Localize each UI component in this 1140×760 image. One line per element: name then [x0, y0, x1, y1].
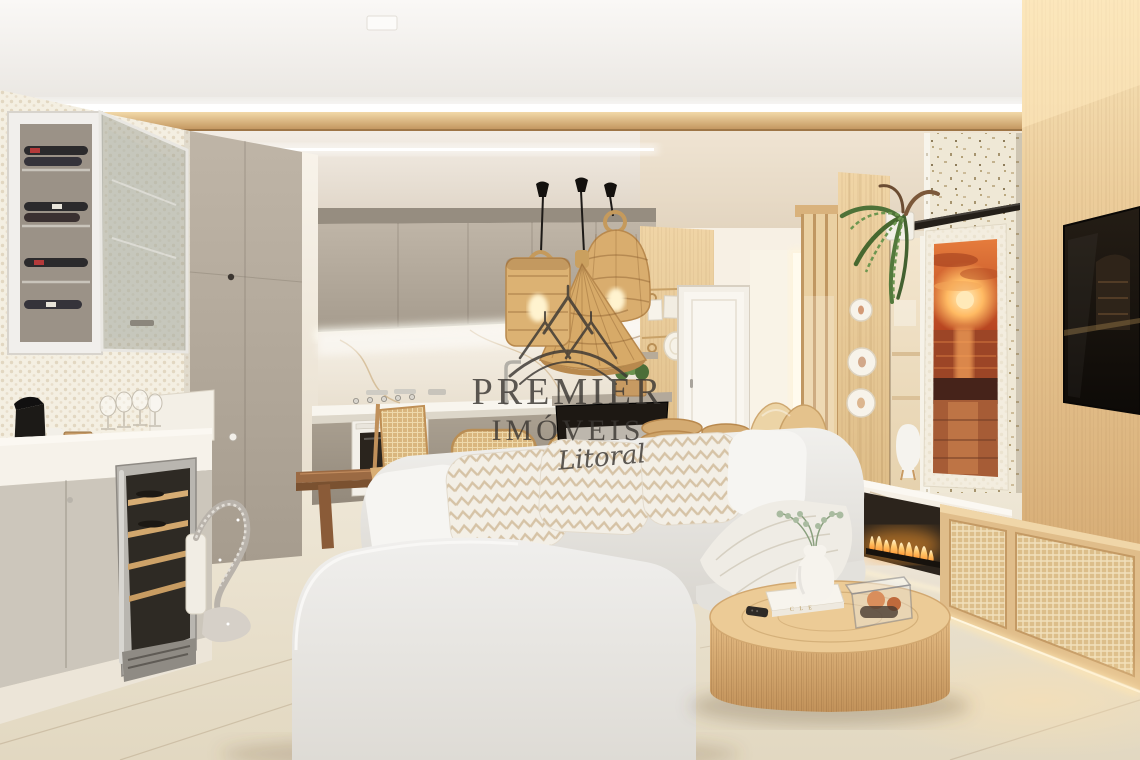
door-handle — [690, 379, 693, 388]
wine-cabinet — [8, 112, 187, 354]
mirror-niche — [890, 236, 925, 492]
cabinet-knob — [229, 433, 237, 441]
wine-fridge — [116, 458, 196, 682]
led-cove-strip — [0, 104, 1030, 112]
ceiling — [0, 0, 1030, 132]
linear-led-light — [232, 148, 654, 151]
cabinet-open-door — [100, 112, 187, 352]
watermark-brand-name: PREMIER — [472, 371, 665, 413]
sofa-front-arm — [292, 538, 696, 760]
fridge-handle — [119, 470, 124, 664]
sunset-artwork — [924, 224, 1008, 490]
cabinet-knob — [67, 497, 73, 503]
cabinet-knob — [228, 274, 234, 280]
tv-reflection — [1096, 254, 1130, 330]
recessed-light-icon — [367, 16, 397, 30]
apartment-render: C L E PREMIER IMÓVEIS Litoral — [0, 0, 1140, 760]
wall-tv — [1064, 207, 1140, 414]
scene: C L E PREMIER IMÓVEIS Litoral — [0, 0, 1140, 760]
decor-acrylic-box — [846, 577, 912, 628]
